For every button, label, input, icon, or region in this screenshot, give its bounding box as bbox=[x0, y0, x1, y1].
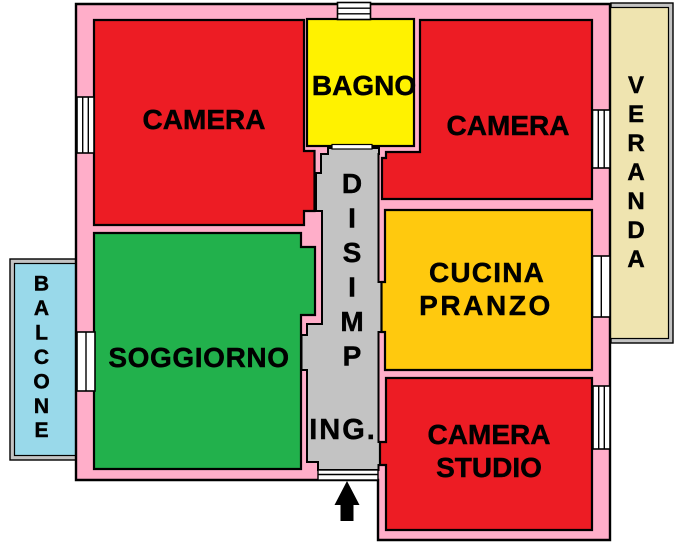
svg-text:V: V bbox=[628, 72, 644, 99]
svg-text:M: M bbox=[340, 306, 363, 337]
svg-text:BAGNO: BAGNO bbox=[312, 70, 416, 101]
svg-text:D: D bbox=[627, 217, 644, 244]
svg-text:P: P bbox=[343, 341, 362, 372]
svg-text:PRANZO: PRANZO bbox=[419, 290, 553, 321]
svg-text:E: E bbox=[628, 101, 644, 128]
svg-text:R: R bbox=[627, 130, 644, 157]
svg-text:A: A bbox=[627, 159, 644, 186]
svg-text:A: A bbox=[34, 297, 49, 320]
svg-text:I: I bbox=[348, 272, 356, 303]
svg-text:SOGGIORNO: SOGGIORNO bbox=[108, 342, 289, 373]
svg-text:N: N bbox=[34, 395, 49, 418]
svg-text:B: B bbox=[34, 273, 49, 296]
svg-text:D: D bbox=[342, 168, 362, 199]
svg-text:CAMERA: CAMERA bbox=[447, 110, 570, 141]
svg-text:C: C bbox=[34, 346, 49, 369]
svg-text:ING.: ING. bbox=[309, 414, 377, 446]
svg-text:I: I bbox=[348, 203, 356, 234]
svg-text:O: O bbox=[33, 370, 49, 393]
svg-text:CUCINA: CUCINA bbox=[429, 257, 545, 288]
svg-text:S: S bbox=[343, 237, 362, 268]
svg-text:CAMERA: CAMERA bbox=[428, 419, 551, 450]
svg-text:L: L bbox=[35, 322, 48, 345]
svg-text:STUDIO: STUDIO bbox=[436, 452, 542, 483]
svg-text:A: A bbox=[627, 246, 644, 273]
svg-text:N: N bbox=[627, 188, 644, 215]
svg-text:CAMERA: CAMERA bbox=[143, 104, 266, 135]
svg-text:E: E bbox=[34, 419, 48, 442]
